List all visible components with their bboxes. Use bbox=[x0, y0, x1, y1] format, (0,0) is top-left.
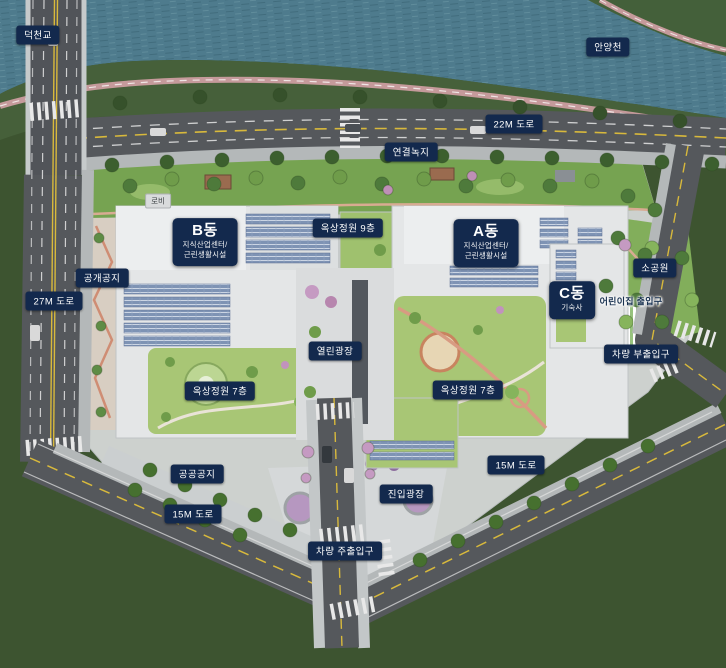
label-road-15m-right: 15M 도로 bbox=[488, 456, 545, 475]
building-c-name: C동 bbox=[559, 286, 585, 303]
building-a-desc1: 지식산업센터/ bbox=[464, 241, 509, 251]
building-label-a: A동 지식산업센터/ 근린생활시설 bbox=[454, 219, 519, 267]
label-public-land: 공공공지 bbox=[171, 465, 224, 484]
label-rooftop-garden-9f: 옥상정원 9층 bbox=[313, 219, 383, 238]
building-b-name: B동 bbox=[183, 223, 228, 240]
site-plan-map: 덕천교 안양천 22M 도로 연결녹지 로비 B동 지식산업센터/ 근린생활시설… bbox=[0, 0, 726, 668]
building-a-name: A동 bbox=[464, 224, 509, 241]
site-plan-canvas bbox=[0, 0, 726, 668]
label-bridge: 덕천교 bbox=[16, 26, 59, 45]
label-road-27m: 27M 도로 bbox=[26, 292, 83, 311]
building-c-desc1: 기숙사 bbox=[559, 303, 585, 313]
label-lobby: 로비 bbox=[145, 194, 171, 209]
label-road-15m-left: 15M 도로 bbox=[165, 505, 222, 524]
label-small-park: 소공원 bbox=[633, 259, 676, 278]
building-b-desc1: 지식산업센터/ bbox=[183, 240, 228, 250]
label-vehicle-main-entrance: 차량 주출입구 bbox=[308, 542, 382, 561]
bridge-and-road-27m bbox=[26, 0, 88, 462]
label-rooftop-garden-7f-left: 옥상정원 7층 bbox=[185, 382, 255, 401]
label-public-open-space: 공개공지 bbox=[76, 269, 129, 288]
building-label-b: B동 지식산업센터/ 근린생활시설 bbox=[173, 218, 238, 266]
label-daycare-entrance: 어린이집 출입구 bbox=[600, 295, 663, 308]
building-b-desc2: 근린생활시설 bbox=[183, 250, 228, 260]
label-river: 안양천 bbox=[586, 38, 629, 57]
building-label-c: C동 기숙사 bbox=[549, 281, 595, 319]
label-rooftop-garden-7f-right: 옥상정원 7층 bbox=[433, 381, 503, 400]
building-a-desc2: 근린생활시설 bbox=[464, 251, 509, 261]
label-green-link: 연결녹지 bbox=[385, 143, 438, 162]
label-open-plaza: 열린광장 bbox=[309, 342, 362, 361]
label-road-22m: 22M 도로 bbox=[486, 115, 543, 134]
label-vehicle-sub-entrance: 차량 부출입구 bbox=[604, 345, 678, 364]
label-entry-plaza: 진입광장 bbox=[380, 485, 433, 504]
